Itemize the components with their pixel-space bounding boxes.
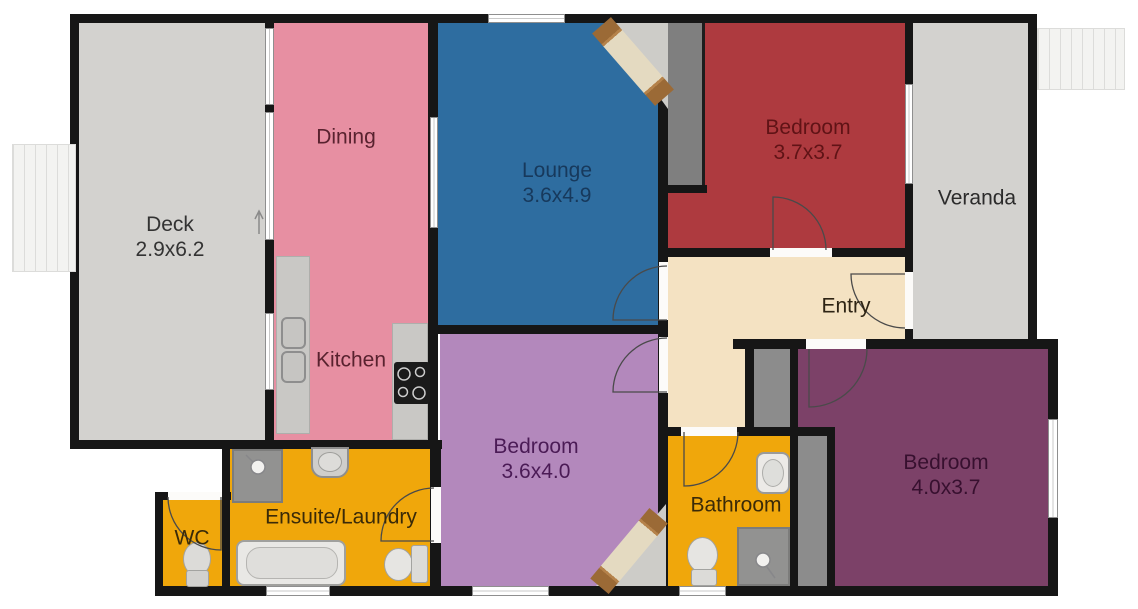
shower-icon bbox=[737, 527, 790, 586]
shower-icon bbox=[232, 449, 283, 503]
stairs-icon bbox=[1037, 28, 1125, 90]
kitchen-sink-icon bbox=[281, 351, 306, 383]
kitchen-label: Kitchen bbox=[316, 348, 386, 373]
room-name: Veranda bbox=[938, 186, 1016, 211]
wall bbox=[155, 492, 163, 596]
room-name: Deck bbox=[136, 212, 205, 237]
wall bbox=[790, 349, 798, 436]
door-opening bbox=[905, 272, 913, 329]
door-opening bbox=[806, 339, 866, 349]
room-name: Bedroom bbox=[903, 450, 988, 475]
wall bbox=[428, 325, 668, 334]
window bbox=[430, 117, 438, 228]
wall bbox=[790, 436, 798, 586]
sliding-door bbox=[265, 112, 274, 240]
bathtub-icon bbox=[246, 547, 338, 579]
wall bbox=[745, 349, 754, 436]
window bbox=[266, 586, 330, 596]
bedroom-right-label: Bedroom 4.0x3.7 bbox=[903, 450, 988, 500]
toilet-icon bbox=[691, 569, 717, 586]
room-name: Bathroom bbox=[690, 493, 781, 518]
bathroom-label: Bathroom bbox=[690, 493, 781, 518]
lounge-label: Lounge 3.6x4.9 bbox=[522, 158, 592, 208]
deck-label: Deck 2.9x6.2 bbox=[136, 212, 205, 262]
room-dims: 3.6x4.0 bbox=[493, 459, 578, 484]
room-name: Bedroom bbox=[765, 115, 850, 140]
room-dims: 3.7x3.7 bbox=[765, 140, 850, 165]
wall bbox=[222, 440, 230, 596]
entry-label: Entry bbox=[821, 294, 870, 319]
wall bbox=[827, 428, 835, 586]
closet bbox=[798, 428, 827, 586]
room-dims: 2.9x6.2 bbox=[136, 237, 205, 262]
chimney-cupboard bbox=[668, 23, 705, 185]
wall bbox=[1028, 14, 1037, 346]
room-dims: 3.6x4.9 bbox=[522, 183, 592, 208]
door-opening bbox=[659, 262, 668, 320]
toilet-icon bbox=[687, 537, 718, 573]
veranda-label: Veranda bbox=[938, 186, 1016, 211]
window bbox=[488, 14, 565, 23]
floor-plan: Deck 2.9x6.2 Dining Lounge 3.6x4.9 Bedro… bbox=[0, 0, 1138, 609]
bedroom-mid-label: Bedroom 3.6x4.0 bbox=[493, 434, 578, 484]
door-opening bbox=[659, 337, 668, 393]
toilet-icon bbox=[186, 570, 209, 587]
room-entry-lower bbox=[668, 339, 745, 427]
room-dims: 4.0x3.7 bbox=[903, 475, 988, 500]
door-opening bbox=[431, 487, 441, 543]
sink-icon bbox=[318, 452, 342, 472]
cooktop-icon bbox=[394, 362, 430, 404]
toilet-icon bbox=[384, 548, 413, 581]
room-name: Kitchen bbox=[316, 348, 386, 373]
closet bbox=[754, 349, 790, 436]
window bbox=[265, 313, 274, 390]
window bbox=[905, 84, 913, 184]
door-opening bbox=[770, 248, 832, 257]
room-name: Ensuite/Laundry bbox=[265, 505, 417, 530]
room-name: Dining bbox=[316, 125, 376, 150]
wall bbox=[70, 440, 442, 449]
stairs-icon bbox=[12, 144, 76, 272]
wall bbox=[733, 339, 1058, 349]
wall bbox=[663, 185, 707, 193]
room-name: Entry bbox=[821, 294, 870, 319]
door-opening bbox=[168, 492, 222, 500]
sink-icon bbox=[762, 459, 784, 487]
bedroom-top-label: Bedroom 3.7x3.7 bbox=[765, 115, 850, 165]
room-veranda bbox=[913, 23, 1028, 339]
room-name: WC bbox=[175, 526, 210, 551]
kitchen-sink-icon bbox=[281, 317, 306, 349]
window bbox=[1048, 419, 1058, 518]
window bbox=[472, 586, 549, 596]
room-name: Bedroom bbox=[493, 434, 578, 459]
ensuite-label: Ensuite/Laundry bbox=[265, 505, 417, 530]
toilet-icon bbox=[411, 545, 428, 583]
room-name: Lounge bbox=[522, 158, 592, 183]
door-opening bbox=[681, 427, 737, 436]
dining-label: Dining bbox=[316, 125, 376, 150]
wc-label: WC bbox=[175, 526, 210, 551]
window bbox=[265, 28, 274, 105]
window bbox=[679, 586, 726, 596]
